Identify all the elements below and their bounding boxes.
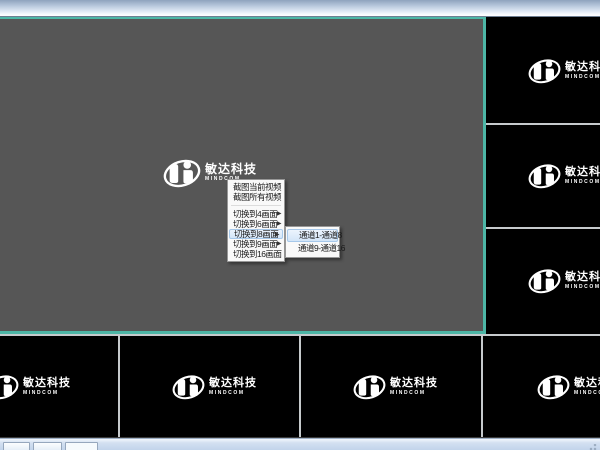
video-panel-bottom-1[interactable]	[0, 336, 118, 437]
menu-item-label: 截图所有视频	[233, 192, 281, 202]
surveillance-app-window: 敏达科技 MINDCOM 敏达科技 MINDCOM 敏达科技 MINDCOM	[0, 0, 600, 450]
submenu-item-channels-1-8[interactable]: 通道1-通道8	[287, 229, 338, 242]
menu-separator	[231, 205, 281, 206]
context-submenu-channels: 通道1-通道8 通道9-通道16	[285, 226, 340, 258]
status-button-1[interactable]	[3, 442, 30, 450]
video-panel-bottom-4[interactable]	[483, 336, 600, 437]
submenu-arrow-icon: ▶	[277, 209, 281, 219]
resize-grip[interactable]	[589, 444, 597, 450]
menu-item-label: 截图当前视频	[233, 182, 281, 192]
submenu-item-label: 通道1-通道8	[299, 230, 342, 240]
submenu-arrow-icon: ▶	[277, 219, 281, 229]
top-toolbar	[0, 0, 600, 17]
submenu-item-channels-9-16[interactable]: 通道9-通道16	[286, 242, 339, 255]
menu-item-snapshot-all[interactable]: 截图所有视频	[228, 192, 284, 202]
video-panel-main-selected[interactable]	[0, 17, 486, 334]
menu-item-snapshot-current[interactable]: 截图当前视频	[228, 182, 284, 192]
menu-item-switch-6-screen[interactable]: 切换到6画面 ▶	[228, 219, 284, 229]
video-panel-bottom-3[interactable]	[301, 336, 481, 437]
context-menu: 截图当前视频 截图所有视频 切换到4画面 ▶ 切换到6画面 ▶ 切换到8画面 ▶…	[227, 179, 285, 262]
menu-item-switch-16-screen[interactable]: 切换到16画面	[228, 249, 284, 259]
video-panel-right-3[interactable]	[486, 229, 600, 334]
status-button-2[interactable]	[33, 442, 62, 450]
menu-item-label: 切换到8画面	[234, 229, 278, 239]
video-panel-bottom-2[interactable]	[120, 336, 299, 437]
menu-item-switch-9-screen[interactable]: 切换到9画面 ▶	[228, 239, 284, 249]
video-panel-right-1[interactable]	[486, 17, 600, 123]
menu-item-label: 切换到6画面	[233, 219, 277, 229]
video-panel-right-2[interactable]	[486, 125, 600, 227]
submenu-item-label: 通道9-通道16	[298, 243, 345, 253]
menu-item-label: 切换到4画面	[233, 209, 277, 219]
submenu-arrow-icon: ▶	[277, 239, 281, 249]
menu-item-switch-8-screen[interactable]: 切换到8画面 ▶	[229, 229, 283, 239]
status-button-3[interactable]	[65, 442, 98, 450]
menu-item-label: 切换到16画面	[233, 249, 281, 259]
menu-item-label: 切换到9画面	[233, 239, 277, 249]
status-bar	[0, 438, 600, 450]
menu-item-switch-4-screen[interactable]: 切换到4画面 ▶	[228, 209, 284, 219]
